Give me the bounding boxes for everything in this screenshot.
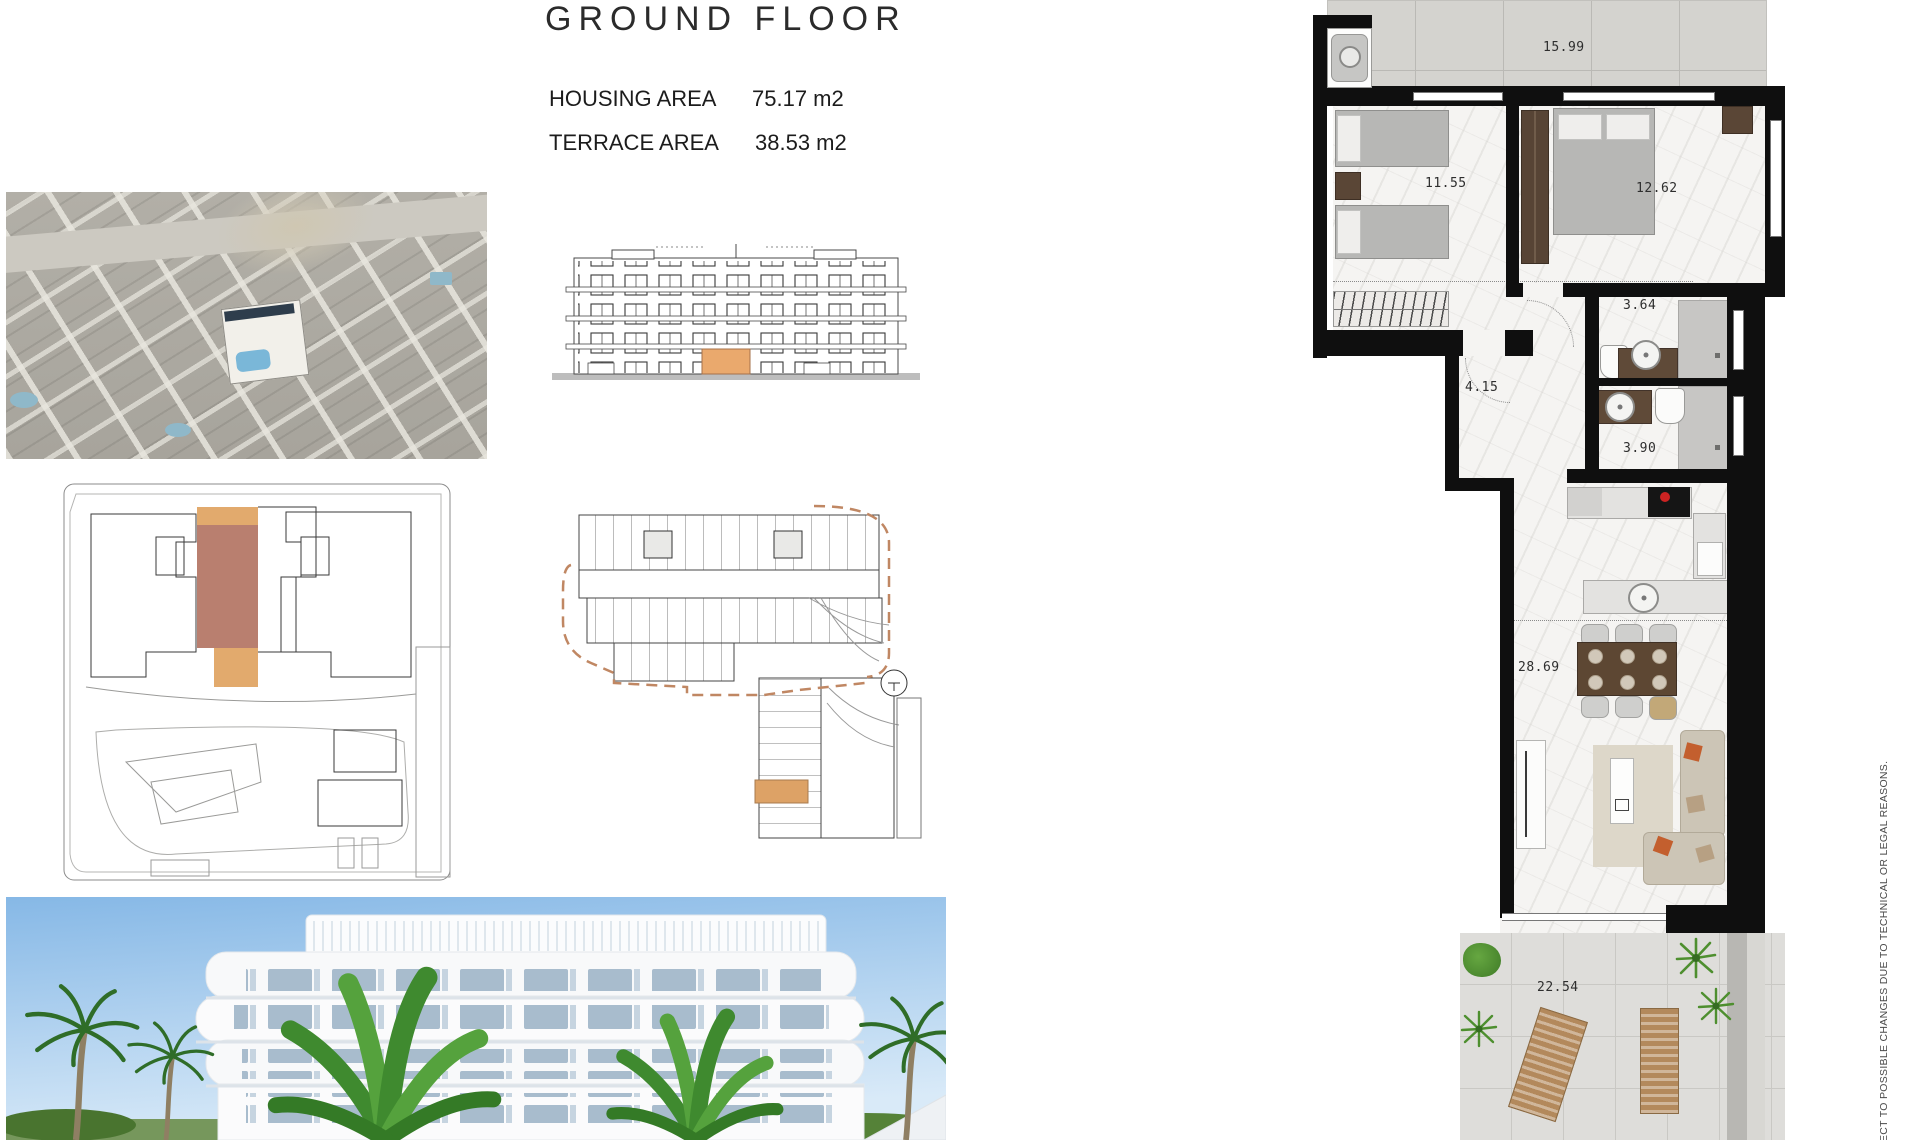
terrace-plant bbox=[1695, 985, 1737, 1027]
wall bbox=[1313, 15, 1327, 358]
coffee-table bbox=[1610, 758, 1634, 824]
wardrobe-bedroom-2 bbox=[1521, 110, 1549, 264]
ground-floor-overview-plan bbox=[559, 503, 926, 883]
aerial-pool-3 bbox=[430, 272, 452, 285]
elevation-highlight-unit bbox=[702, 349, 750, 374]
door-opening bbox=[1523, 283, 1563, 297]
room-label-hall: 4.15 bbox=[1465, 380, 1498, 395]
aerial-map bbox=[6, 192, 487, 459]
room-label-living: 28.69 bbox=[1518, 660, 1560, 675]
wall bbox=[1727, 297, 1765, 933]
window bbox=[1733, 310, 1744, 370]
brochure-page: GROUND FLOOR HOUSING AREA 75.17 m2 TERRA… bbox=[0, 0, 1920, 1140]
wall bbox=[1567, 469, 1727, 483]
room-label-bedroom-2: 12.62 bbox=[1636, 181, 1678, 196]
aerial-pool-1 bbox=[10, 392, 38, 408]
exterior-mask-left bbox=[1313, 356, 1445, 1140]
wall bbox=[1445, 356, 1459, 491]
siteplan-highlight-mid bbox=[197, 525, 258, 648]
dining-chair bbox=[1649, 696, 1677, 720]
nightstand-1 bbox=[1335, 172, 1361, 200]
nightstand-2 bbox=[1722, 106, 1753, 134]
terrace-area-value: 38.53 m2 bbox=[755, 130, 847, 156]
terrace-bush bbox=[1463, 943, 1501, 977]
aerial-pool-2 bbox=[165, 423, 191, 437]
sun-lounger-2 bbox=[1640, 1008, 1679, 1114]
sink-1 bbox=[1631, 340, 1661, 370]
unit-floor-plan: 15.99 11.55 12.62 3.64 4.15 3.90 28.69 2… bbox=[1313, 0, 1785, 1140]
terrace-plant bbox=[1673, 935, 1719, 981]
cooktop-burner bbox=[1660, 492, 1670, 502]
page-title: GROUND FLOOR bbox=[545, 0, 845, 39]
window bbox=[1563, 92, 1715, 101]
window bbox=[1770, 120, 1782, 237]
aerial-site-pool bbox=[235, 349, 271, 373]
shower-2 bbox=[1678, 386, 1729, 470]
overview-highlight-unit bbox=[755, 780, 808, 803]
dining-chair bbox=[1581, 696, 1609, 718]
kitchen-counter-side bbox=[1693, 513, 1726, 579]
window bbox=[1413, 92, 1503, 101]
twin-bed-2 bbox=[1335, 205, 1449, 259]
wall bbox=[1506, 106, 1519, 297]
sliding-door bbox=[1502, 913, 1666, 921]
aerial-sand-patch bbox=[208, 192, 384, 288]
siteplan-highlight-bottom bbox=[214, 648, 258, 687]
dining-chair bbox=[1615, 696, 1643, 718]
cooktop bbox=[1648, 487, 1690, 517]
room-label-bedroom-1: 11.55 bbox=[1425, 176, 1467, 191]
site-plan-drawing bbox=[56, 482, 457, 884]
door-opening bbox=[1463, 330, 1505, 356]
window bbox=[1733, 396, 1744, 456]
tv-sideboard bbox=[1516, 740, 1546, 849]
room-label-bathroom-1: 3.64 bbox=[1623, 298, 1656, 313]
terrace-plant bbox=[1458, 1008, 1500, 1050]
terrace-planter bbox=[1727, 933, 1747, 1140]
dining-table bbox=[1577, 642, 1677, 696]
wardrobe-bedroom-1 bbox=[1333, 291, 1449, 327]
building-render-photo bbox=[6, 897, 946, 1140]
disclaimer-text: ECT TO POSSIBLE CHANGES DUE TO TECHNICAL… bbox=[1878, 761, 1890, 1140]
twin-bed-1 bbox=[1335, 110, 1449, 167]
wall bbox=[1500, 478, 1514, 918]
terrace-planter-outer bbox=[1747, 933, 1765, 1140]
kitchen-sink bbox=[1628, 583, 1659, 613]
toilet-2 bbox=[1655, 388, 1685, 424]
sink-2 bbox=[1605, 392, 1635, 422]
aerial-site-highlight bbox=[221, 299, 310, 384]
housing-area-value: 75.17 m2 bbox=[752, 86, 844, 112]
wall bbox=[1666, 905, 1727, 933]
sofa-pillow bbox=[1686, 795, 1706, 814]
shower-1 bbox=[1678, 300, 1729, 380]
aerial-site-roof bbox=[224, 303, 295, 321]
terrace-area-label: TERRACE AREA bbox=[549, 130, 719, 156]
building-elevation-drawing bbox=[552, 242, 920, 386]
housing-area-label: HOUSING AREA bbox=[549, 86, 716, 112]
siteplan-highlight-top bbox=[197, 507, 258, 525]
kitchen-dash-line bbox=[1514, 620, 1727, 621]
wall bbox=[1313, 15, 1372, 28]
room-label-terrace-main: 22.54 bbox=[1537, 980, 1579, 995]
room-label-bathroom-2: 3.90 bbox=[1623, 441, 1656, 456]
washing-machine bbox=[1331, 34, 1368, 82]
double-bed bbox=[1553, 108, 1655, 235]
room-label-terrace-top: 15.99 bbox=[1543, 40, 1585, 55]
